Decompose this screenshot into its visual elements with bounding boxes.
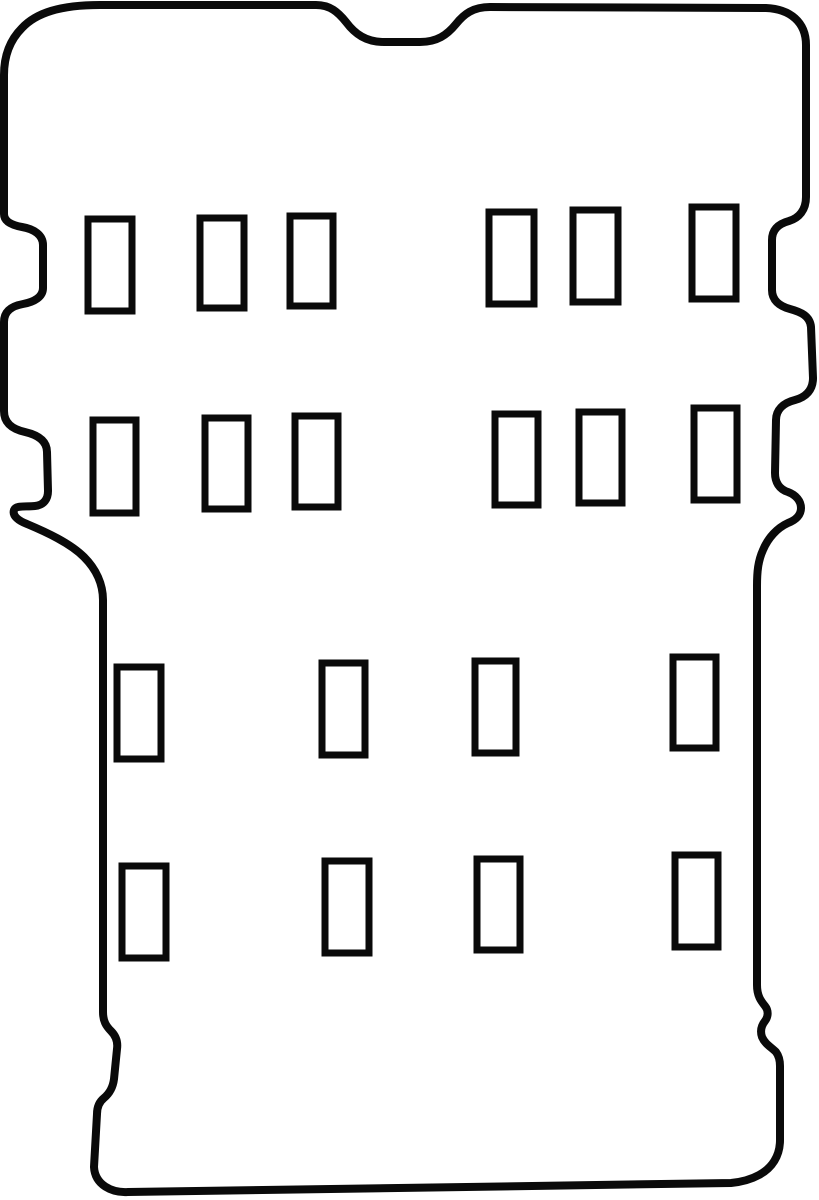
mat-slot-row4-18	[325, 861, 369, 953]
mat-slot-row3-13	[117, 667, 161, 759]
mat-slot-row4-20	[675, 855, 718, 947]
mat-slot-row1-1	[88, 219, 132, 311]
mat-slot-row1-3	[290, 216, 333, 306]
mat-slot-row2-12	[694, 408, 737, 500]
mat-slot-row4-17	[122, 866, 166, 958]
template-drawing-page	[0, 0, 819, 1200]
mat-slot-row3-15	[475, 661, 516, 753]
mat-slot-row4-19	[477, 859, 520, 950]
mat-slot-row2-7	[93, 420, 136, 513]
mat-slot-row2-8	[205, 418, 248, 509]
mat-slot-row2-10	[495, 414, 538, 505]
mat-slot-row1-2	[200, 218, 244, 308]
mat-slot-row3-16	[673, 657, 716, 748]
mat-slot-row1-5	[573, 210, 618, 302]
mat-slot-row3-14	[322, 663, 365, 755]
mat-slot-row2-9	[295, 416, 338, 507]
mat-outline	[4, 5, 813, 1192]
mat-slot-row2-11	[579, 412, 622, 503]
floor-mat-template-diagram	[0, 0, 819, 1200]
mat-slot-row1-6	[692, 207, 736, 299]
mat-slot-row1-4	[489, 212, 534, 304]
